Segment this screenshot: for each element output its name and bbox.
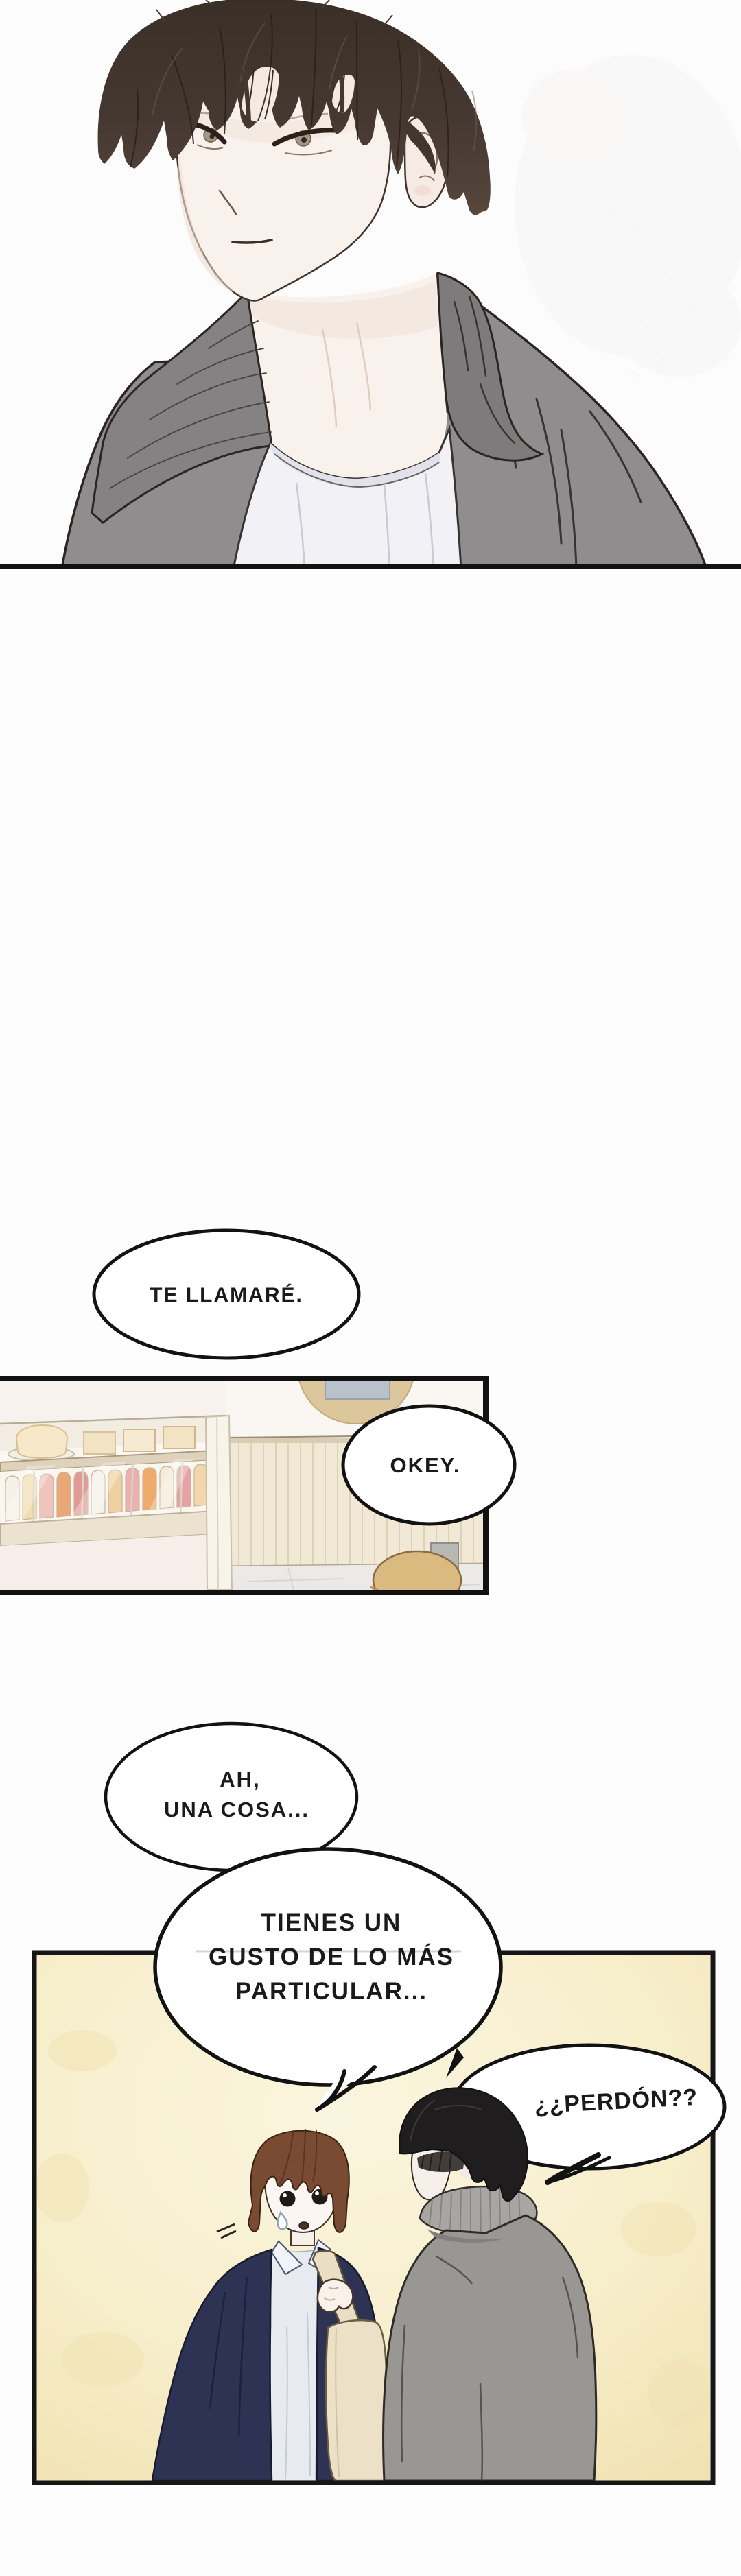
svg-text:GUSTO DE LO MÁS: GUSTO DE LO MÁS: [209, 1943, 454, 1970]
svg-text:OKEY.: OKEY.: [390, 1453, 460, 1477]
svg-text:PARTICULAR...: PARTICULAR...: [235, 1978, 427, 2005]
svg-text:TIENES UN: TIENES UN: [261, 1909, 402, 1936]
svg-text:TE LLAMARÉ.: TE LLAMARÉ.: [150, 1283, 303, 1307]
svg-text:AH,: AH,: [220, 1767, 260, 1791]
svg-text:UNA COSA...: UNA COSA...: [164, 1798, 309, 1822]
